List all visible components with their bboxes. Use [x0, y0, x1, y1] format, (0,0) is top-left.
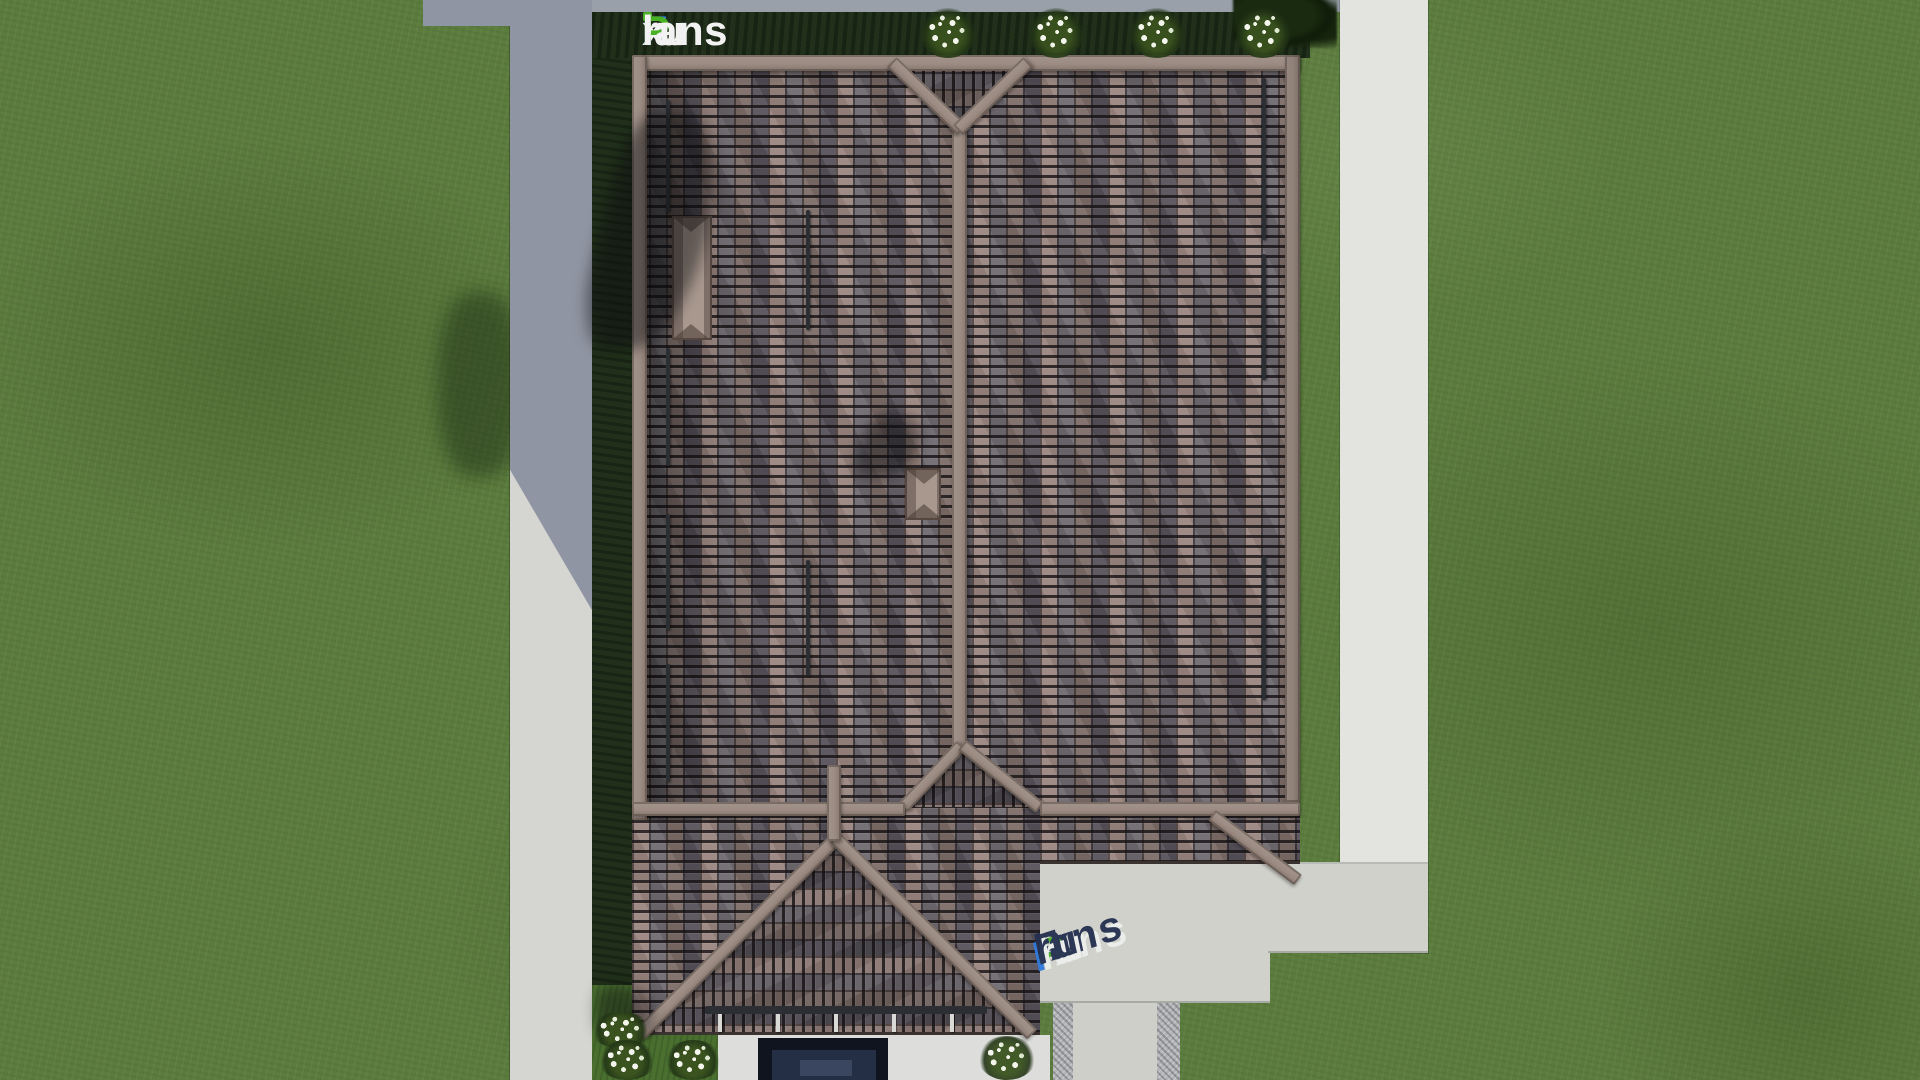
main-roof — [632, 55, 1300, 820]
snow-guard — [666, 664, 670, 782]
snow-guard — [666, 514, 670, 630]
aerial-roof-render: FixPlans.ru FixPlans.ru — [0, 0, 1920, 1080]
top-left-pavement — [423, 0, 510, 26]
ridge-bottom-right — [1040, 802, 1300, 816]
left-sidewalk — [510, 0, 592, 1080]
entrance-canopy — [758, 1038, 888, 1080]
gutter-bracket — [892, 1014, 896, 1032]
gutter-bracket — [718, 1014, 722, 1032]
ridge-right-edge — [1285, 55, 1300, 802]
flower-bush — [1129, 8, 1185, 58]
porch-gutter — [705, 1006, 987, 1014]
logo-letters-ru: ru — [642, 8, 685, 54]
walkway-gravel-border-left — [1053, 1003, 1073, 1080]
porch-gable-front — [632, 820, 1040, 1032]
gutter-bracket — [834, 1014, 838, 1032]
ridge-porch-connector — [827, 765, 841, 841]
snow-guard — [1262, 78, 1266, 240]
snow-guard — [806, 560, 810, 676]
snow-guard — [1262, 556, 1266, 700]
gravel-edged-walkway — [1053, 1003, 1180, 1080]
flower-bush — [664, 1040, 722, 1080]
flower-bush — [920, 8, 976, 58]
ridge-bottom-left — [632, 802, 905, 816]
flower-bush — [1028, 8, 1084, 58]
snow-guard — [1262, 254, 1266, 380]
chimney — [905, 468, 941, 520]
entrance-door — [800, 1060, 852, 1076]
flower-bush — [978, 1036, 1036, 1080]
snow-guard — [806, 210, 810, 330]
flower-bush — [1235, 8, 1291, 58]
ridge-main-vertical — [952, 126, 967, 750]
snow-guard — [666, 348, 670, 466]
entrance-steps — [772, 1050, 876, 1080]
porch-roof — [632, 820, 1040, 1035]
gutter-bracket — [776, 1014, 780, 1032]
left-sidewalk-sunlit — [510, 0, 592, 1080]
walkway-gravel-border-right — [1157, 1003, 1180, 1080]
right-footpath — [1340, 0, 1428, 953]
flower-bush — [598, 1040, 656, 1080]
walkway-center — [1073, 1003, 1157, 1080]
gutter-bracket — [950, 1014, 954, 1032]
